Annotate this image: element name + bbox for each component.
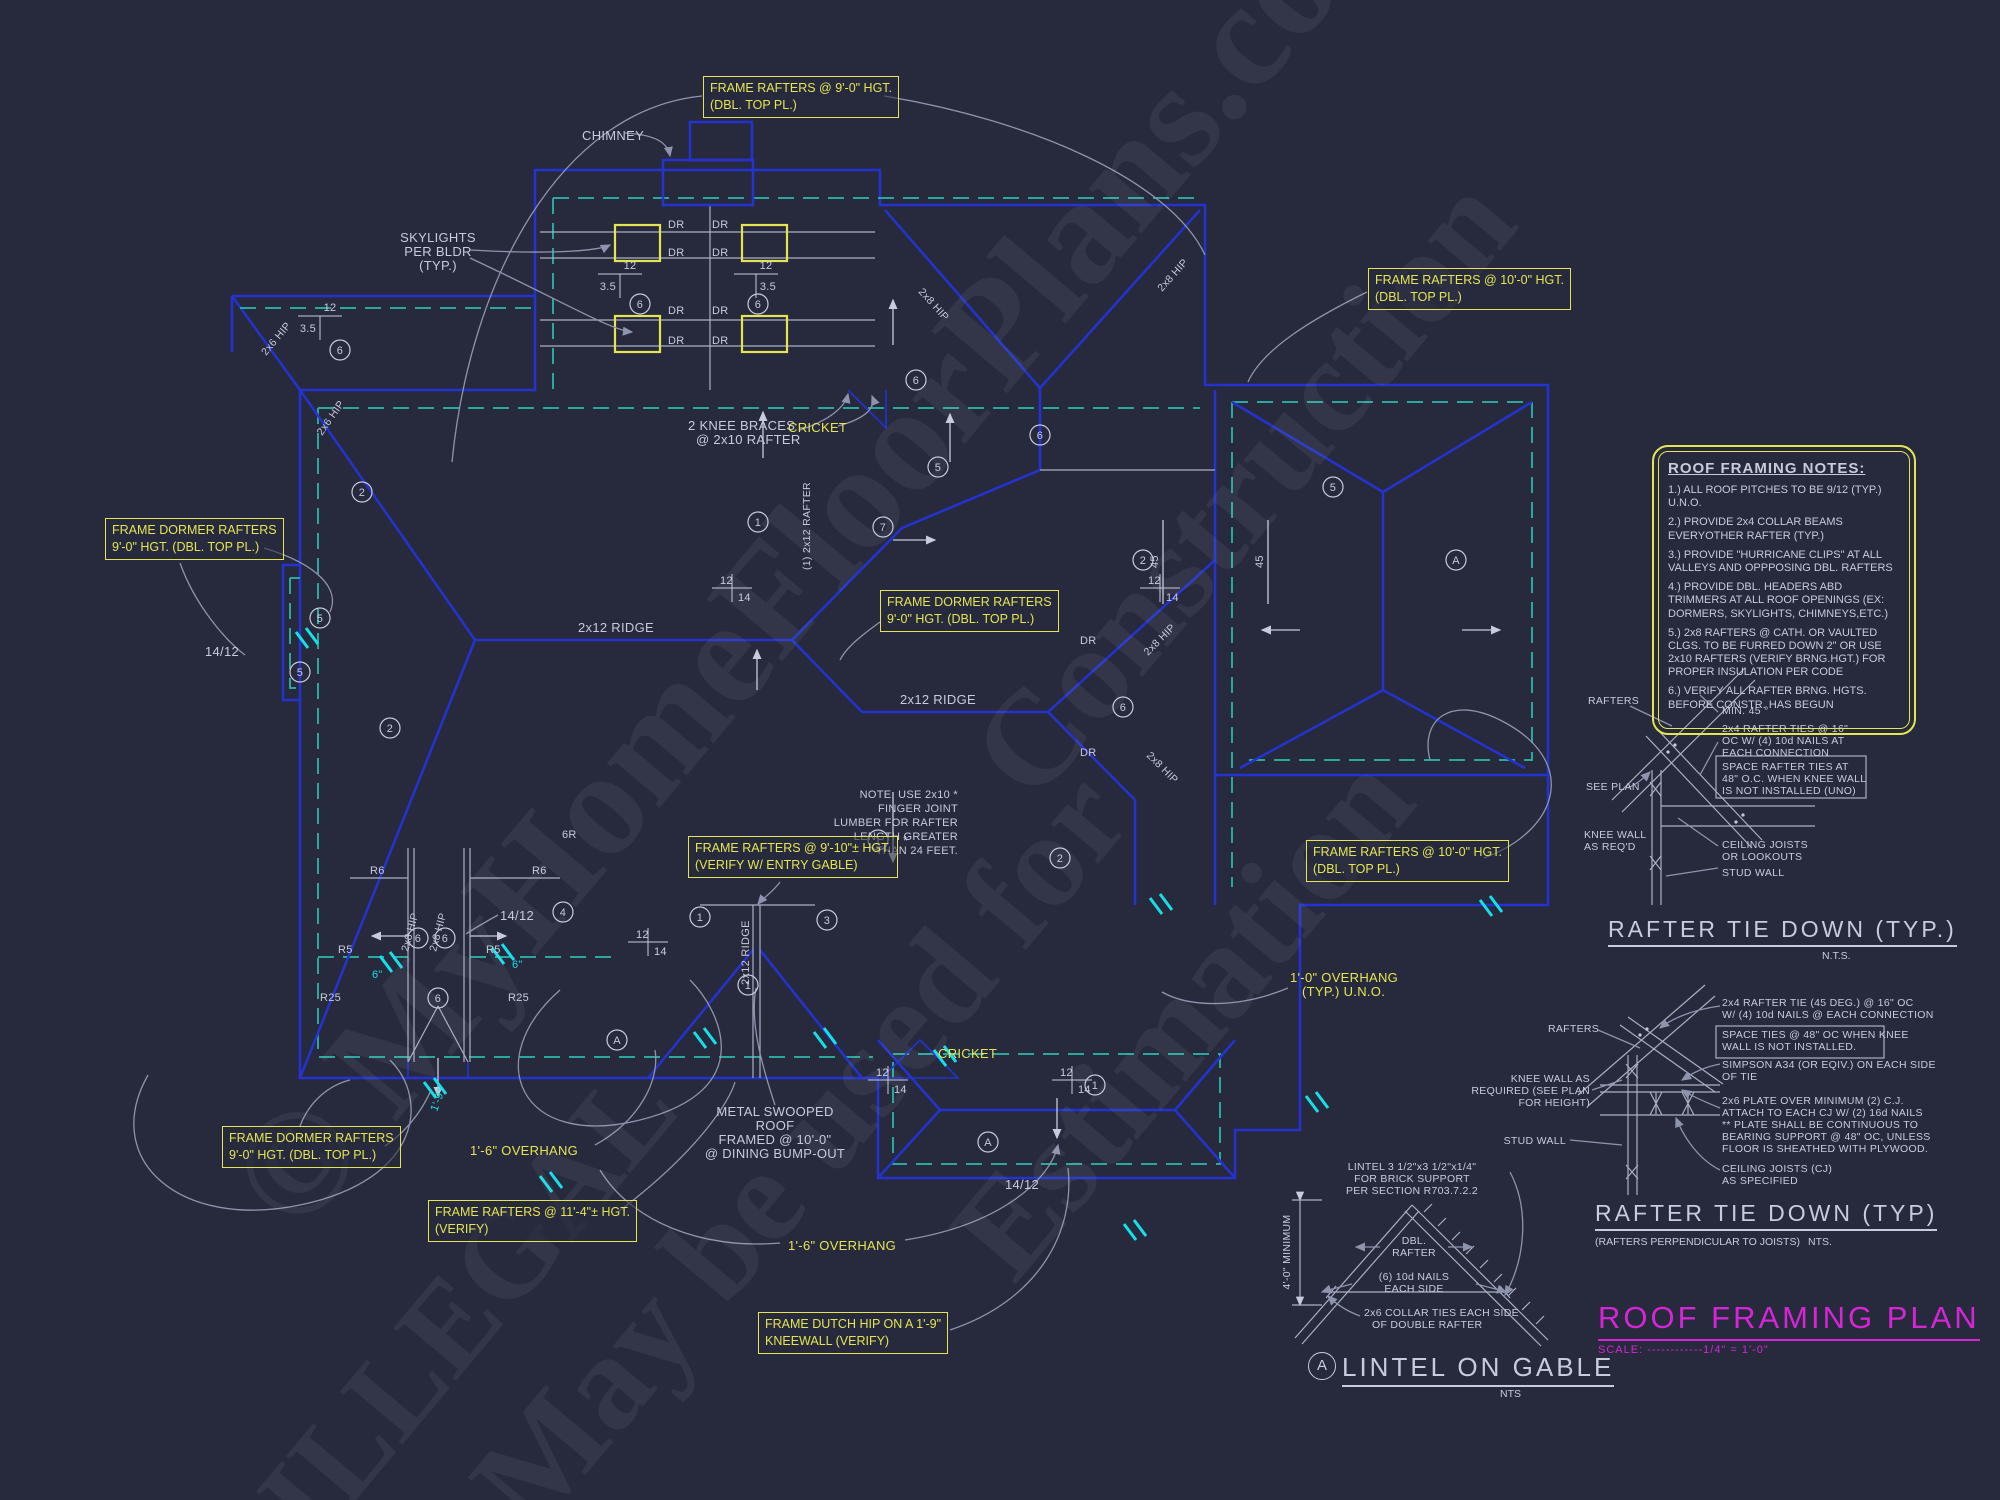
svg-text:14: 14 (894, 1084, 907, 1096)
roof-wall-dashed-lines (240, 198, 1532, 1164)
cricket-label: CRICKET (788, 420, 847, 435)
svg-text:3.5: 3.5 (300, 323, 316, 335)
svg-text:FOR HEIGHT): FOR HEIGHT) (1518, 1097, 1590, 1109)
svg-text:14: 14 (738, 592, 751, 604)
notes-title: ROOF FRAMING NOTES: (1668, 460, 1900, 477)
svg-text:DBL.: DBL. (1402, 1235, 1427, 1247)
sheet-title: ROOF FRAMING PLAN (1598, 1300, 1980, 1341)
svg-text:6: 6 (442, 933, 448, 945)
overhang-16-label: 1'-6" OVERHANG (470, 1143, 578, 1158)
svg-text:12: 12 (760, 260, 773, 272)
svg-text:SPACE TIES @ 48" OC WHEN KNEE: SPACE TIES @ 48" OC WHEN KNEE (1722, 1029, 1909, 1041)
svg-text:RAFTER: RAFTER (1392, 1247, 1436, 1259)
pitch-14-12: 14/12 (205, 644, 239, 659)
metal-roof-label: METAL SWOOPED ROOF FRAMED @ 10'-0" @ DIN… (705, 1104, 845, 1161)
svg-text:RAFTERS: RAFTERS (1588, 695, 1639, 707)
svg-text:5: 5 (317, 613, 323, 625)
overhang-10-label: 1'-0" OVERHANG (TYP.) U.N.O. (1290, 970, 1398, 999)
svg-text:6: 6 (415, 933, 421, 945)
detail2-nts: NTS. (1808, 1236, 1832, 1248)
svg-text:6R: 6R (562, 829, 577, 841)
svg-text:BEARING SUPPORT @ 48" OC, UNLE: BEARING SUPPORT @ 48" OC, UNLESS (1722, 1131, 1931, 1143)
svg-text:6: 6 (337, 345, 343, 357)
svg-text:12: 12 (324, 302, 337, 314)
callout-frame-rafters-10-right: FRAME RAFTERS @ 10'-0" HGT.(DBL. TOP PL.… (1306, 840, 1509, 882)
sheet-scale: SCALE: ------------1/4" = 1'-0" (1598, 1344, 1769, 1356)
svg-text:(TYP.) U.N.O.: (TYP.) U.N.O. (1302, 984, 1385, 999)
svg-text:SEE PLAN: SEE PLAN (1586, 781, 1640, 793)
svg-text:PER SECTION R703.7.2.2: PER SECTION R703.7.2.2 (1346, 1185, 1478, 1197)
svg-text:14: 14 (1078, 1084, 1091, 1096)
svg-text:OC W/ (4) 10d NAILS AT: OC W/ (4) 10d NAILS AT (1722, 735, 1845, 747)
svg-text:A: A (613, 1035, 621, 1047)
svg-text:DR: DR (668, 305, 685, 317)
svg-text:R25: R25 (320, 992, 341, 1004)
callout-frame-rafters-11: FRAME RAFTERS @ 11'-4"± HGT.(VERIFY) (428, 1200, 637, 1242)
svg-text:** PLATE SHALL BE CONTINUOUS T: ** PLATE SHALL BE CONTINUOUS TO (1722, 1119, 1918, 1131)
svg-text:48" O.C. WHEN KNEE WALL: 48" O.C. WHEN KNEE WALL (1722, 773, 1866, 785)
svg-text:OR LOOKOUTS: OR LOOKOUTS (1722, 851, 1802, 863)
svg-text:2: 2 (359, 487, 365, 499)
svg-text:AS REQ'D: AS REQ'D (1584, 841, 1636, 853)
svg-text:DR: DR (1080, 747, 1097, 759)
detail3-bubble: A (1308, 1352, 1336, 1380)
svg-text:A: A (984, 1137, 992, 1149)
svg-text:12: 12 (636, 929, 649, 941)
detail3-nts: NTS (1500, 1388, 1521, 1400)
svg-text:CEILING JOISTS (CJ): CEILING JOISTS (CJ) (1722, 1163, 1832, 1175)
svg-text:1: 1 (755, 517, 761, 529)
svg-text:R6: R6 (532, 865, 547, 877)
svg-text:@ DINING BUMP-OUT: @ DINING BUMP-OUT (705, 1146, 845, 1161)
blueprint-sheet: 6" 6" 1'-9" CHIMNEY SKYLIGHTS PER BLDR (… (0, 0, 2000, 1500)
svg-text:DR: DR (668, 219, 685, 231)
svg-text:@ 2x10 RAFTER: @ 2x10 RAFTER (696, 432, 801, 447)
svg-text:6: 6 (637, 299, 643, 311)
svg-text:METAL SWOOPED: METAL SWOOPED (716, 1104, 833, 1119)
svg-text:2x8 HIP: 2x8 HIP (1155, 257, 1190, 294)
svg-text:R6: R6 (370, 865, 385, 877)
svg-text:3.5: 3.5 (760, 281, 776, 293)
keynote-bubbles: 6 6 6 2 5 5 2 1 7 5 6 6 6 6 1 3 1 A A 2 … (290, 294, 1466, 1152)
roof-outer-boundary (232, 170, 1548, 1178)
svg-text:14: 14 (1166, 592, 1179, 604)
ridge-label: 2x12 RIDGE (900, 692, 976, 707)
chimney-label: CHIMNEY (582, 128, 644, 143)
chimney-dormer (540, 122, 875, 390)
svg-text:12: 12 (720, 575, 733, 587)
roof-framing-drawing: 6" 6" 1'-9" CHIMNEY SKYLIGHTS PER BLDR (… (0, 0, 2000, 1500)
svg-text:EACH SIDE: EACH SIDE (1384, 1283, 1443, 1295)
svg-text:STUD WALL: STUD WALL (1722, 867, 1784, 879)
svg-text:ATTACH TO EACH CJ W/ (2) 16d N: ATTACH TO EACH CJ W/ (2) 16d NAILS (1722, 1107, 1923, 1119)
callout-dutch-hip: FRAME DUTCH HIP ON A 1'-9"KNEEWALL (VERI… (758, 1312, 948, 1354)
svg-text:3: 3 (824, 915, 830, 927)
svg-text:OF DOUBLE RAFTER: OF DOUBLE RAFTER (1372, 1319, 1483, 1331)
svg-text:1: 1 (1092, 1080, 1098, 1092)
note-item: 3.) PROVIDE "HURRICANE CLIPS" AT ALL VAL… (1668, 549, 1900, 575)
svg-text:2x4 RAFTER TIE (45 DEG.) @ 16": 2x4 RAFTER TIE (45 DEG.) @ 16" OC (1722, 997, 1914, 1009)
svg-text:4: 4 (560, 907, 566, 919)
svg-text:ROOF: ROOF (756, 1118, 795, 1133)
svg-text:DR: DR (668, 247, 685, 259)
svg-text:5: 5 (935, 462, 941, 474)
svg-text:2x8 HIP: 2x8 HIP (916, 286, 951, 323)
svg-text:DR: DR (712, 247, 729, 259)
svg-text:FOR BRICK SUPPORT: FOR BRICK SUPPORT (1354, 1173, 1470, 1185)
cricket-label: CRICKET (938, 1046, 997, 1061)
detail2-subtitle: (RAFTERS PERPENDICULAR TO JOISTS) (1595, 1236, 1800, 1248)
ridge-label: 2x12 RIDGE (578, 620, 654, 635)
overhang-16-label: 1'-6" OVERHANG (788, 1238, 896, 1253)
svg-text:STUD WALL: STUD WALL (1504, 1135, 1566, 1147)
dim-6in: 6" (372, 969, 383, 981)
svg-text:R5: R5 (338, 944, 353, 956)
svg-text:2x6 PLATE OVER MINIMUM (2) C.J: 2x6 PLATE OVER MINIMUM (2) C.J. (1722, 1095, 1904, 1107)
pitch-14-12: 14/12 (1005, 1177, 1039, 1192)
note-item: 5.) 2x8 RAFTERS @ CATH. OR VAULTED CLGS.… (1668, 627, 1900, 680)
callout-frame-rafters-10-top: FRAME RAFTERS @ 10'-0" HGT.(DBL. TOP PL.… (1368, 268, 1571, 310)
callout-frame-dormer-center: FRAME DORMER RAFTERS9'-0" HGT. (DBL. TOP… (880, 590, 1059, 632)
svg-text:AS SPECIFIED: AS SPECIFIED (1722, 1175, 1798, 1187)
svg-text:OF TIE: OF TIE (1722, 1071, 1757, 1083)
callout-frame-rafters-entry: FRAME RAFTERS @ 9'-10"± HGT.(VERIFY W/ E… (688, 836, 898, 878)
svg-text:FINGER JOINT: FINGER JOINT (878, 803, 958, 815)
svg-text:DR: DR (668, 335, 685, 347)
dim-6in: 6" (512, 959, 523, 971)
svg-text:12: 12 (1148, 575, 1161, 587)
svg-text:LINTEL 3 1/2"x3 1/2"x1/4": LINTEL 3 1/2"x3 1/2"x1/4" (1348, 1161, 1477, 1173)
svg-text:2 KNEE BRACES: 2 KNEE BRACES (688, 418, 795, 433)
svg-text:SKYLIGHTS: SKYLIGHTS (400, 230, 476, 245)
svg-text:PER BLDR: PER BLDR (404, 244, 471, 259)
svg-text:SIMPSON A34 (OR EQIV.) ON EACH: SIMPSON A34 (OR EQIV.) ON EACH SIDE (1722, 1059, 1936, 1071)
svg-text:2: 2 (1057, 853, 1063, 865)
pitch-14-12: 14/12 (500, 908, 534, 923)
svg-text:R25: R25 (508, 992, 529, 1004)
svg-text:EACH CONNECTION: EACH CONNECTION (1722, 747, 1829, 759)
svg-text:1'-0" OVERHANG: 1'-0" OVERHANG (1290, 970, 1398, 985)
svg-text:*: * (903, 833, 908, 848)
callout-frame-rafters-9: FRAME RAFTERS @ 9'-0" HGT.(DBL. TOP PL.) (703, 76, 899, 118)
svg-text:6: 6 (1037, 430, 1043, 442)
svg-text:IS NOT INSTALLED (UNO): IS NOT INSTALLED (UNO) (1722, 785, 1856, 797)
svg-text:(TYP.): (TYP.) (419, 258, 457, 273)
svg-text:R5: R5 (486, 944, 501, 956)
dim-45: 45 (1254, 555, 1266, 568)
bottom-left-dormer (350, 848, 560, 1078)
svg-text:A: A (1452, 555, 1460, 567)
skylights-label: SKYLIGHTS PER BLDR (TYP.) (400, 230, 476, 273)
svg-text:2x8 HIP: 2x8 HIP (1142, 622, 1178, 658)
svg-text:12: 12 (876, 1067, 889, 1079)
svg-text:DR: DR (1080, 635, 1097, 647)
svg-text:6: 6 (755, 299, 761, 311)
svg-text:W/ (4) 10d NAILS @ EACH CONNEC: W/ (4) 10d NAILS @ EACH CONNECTION (1722, 1009, 1934, 1021)
note-item: 2.) PROVIDE 2x4 COLLAR BEAMS EVERYOTHER … (1668, 516, 1900, 542)
svg-text:(6) 10d NAILS: (6) 10d NAILS (1379, 1271, 1449, 1283)
detail3-title: LINTEL ON GABLE (1342, 1352, 1614, 1387)
note-item: 1.) ALL ROOF PITCHES TO BE 9/12 (TYP.) U… (1668, 484, 1900, 510)
callout-frame-dormer-left: FRAME DORMER RAFTERS9'-0" HGT. (DBL. TOP… (105, 518, 284, 560)
svg-text:FLOOR IS SHEATHED WITH PLYWOOD: FLOOR IS SHEATHED WITH PLYWOOD. (1722, 1143, 1928, 1155)
svg-text:DR: DR (712, 219, 729, 231)
svg-text:SPACE RAFTER TIES AT: SPACE RAFTER TIES AT (1722, 761, 1849, 773)
pitch-markers-12-35: 123.5 123.5 123.5 (298, 260, 778, 340)
svg-text:KNEE WALL AS: KNEE WALL AS (1511, 1073, 1590, 1085)
svg-text:12: 12 (624, 260, 637, 272)
svg-text:DR: DR (712, 335, 729, 347)
svg-text:2: 2 (387, 723, 393, 735)
svg-text:6: 6 (435, 993, 441, 1005)
svg-text:REQUIRED (SEE PLAN: REQUIRED (SEE PLAN (1471, 1085, 1590, 1097)
svg-text:FRAMED @ 10'-0": FRAMED @ 10'-0" (719, 1132, 832, 1147)
note-item: 6.) VERIFY ALL RAFTER BRNG. HGTS. BEFORE… (1668, 685, 1900, 711)
svg-text:RAFTERS: RAFTERS (1548, 1023, 1599, 1035)
svg-text:WALL IS NOT INSTALLED.: WALL IS NOT INSTALLED. (1722, 1041, 1856, 1053)
svg-text:KNEE WALL: KNEE WALL (1584, 829, 1646, 841)
svg-text:12: 12 (1060, 1067, 1073, 1079)
svg-text:5: 5 (1330, 482, 1336, 494)
svg-text:LUMBER FOR RAFTER: LUMBER FOR RAFTER (834, 817, 958, 829)
detail1-title: RAFTER TIE DOWN (TYP.) (1608, 916, 1957, 947)
svg-text:6: 6 (1120, 702, 1126, 714)
svg-text:7: 7 (880, 522, 886, 534)
knee-braces-label: 2 KNEE BRACES @ 2x10 RAFTER (688, 418, 801, 447)
roof-framing-notes-box: ROOF FRAMING NOTES: 1.) ALL ROOF PITCHES… (1652, 445, 1916, 735)
svg-text:6: 6 (913, 375, 919, 387)
svg-text:2x8 HIP: 2x8 HIP (1144, 750, 1180, 786)
svg-text:3.5: 3.5 (600, 281, 616, 293)
double-rafter-labels: DR DR DR DR DR DR DR DR DR DR (668, 219, 1097, 759)
svg-text:DR: DR (712, 305, 729, 317)
svg-text:2: 2 (1140, 555, 1146, 567)
detail1-nts: N.T.S. (1822, 950, 1851, 962)
svg-text:NOTE: USE 2x10 *: NOTE: USE 2x10 * (860, 789, 959, 801)
svg-text:1: 1 (745, 980, 751, 992)
svg-text:2x6 COLLAR TIES EACH SIDE: 2x6 COLLAR TIES EACH SIDE (1364, 1307, 1519, 1319)
chimney-cap (690, 122, 752, 160)
svg-text:4'-0" MINIMUM: 4'-0" MINIMUM (1281, 1215, 1293, 1290)
svg-text:5: 5 (297, 667, 303, 679)
svg-text:1: 1 (697, 912, 703, 924)
svg-text:CEILING JOISTS: CEILING JOISTS (1722, 839, 1808, 851)
note-item: 4.) PROVIDE DBL. HEADERS ABD TRIMMERS AT… (1668, 581, 1900, 621)
svg-text:14: 14 (654, 946, 667, 958)
svg-text:(1) 2x12 RAFTER: (1) 2x12 RAFTER (801, 482, 813, 570)
callout-frame-dormer-bottom: FRAME DORMER RAFTERS9'-0" HGT. (DBL. TOP… (222, 1126, 401, 1168)
detail2-title: RAFTER TIE DOWN (TYP) (1595, 1200, 1937, 1231)
